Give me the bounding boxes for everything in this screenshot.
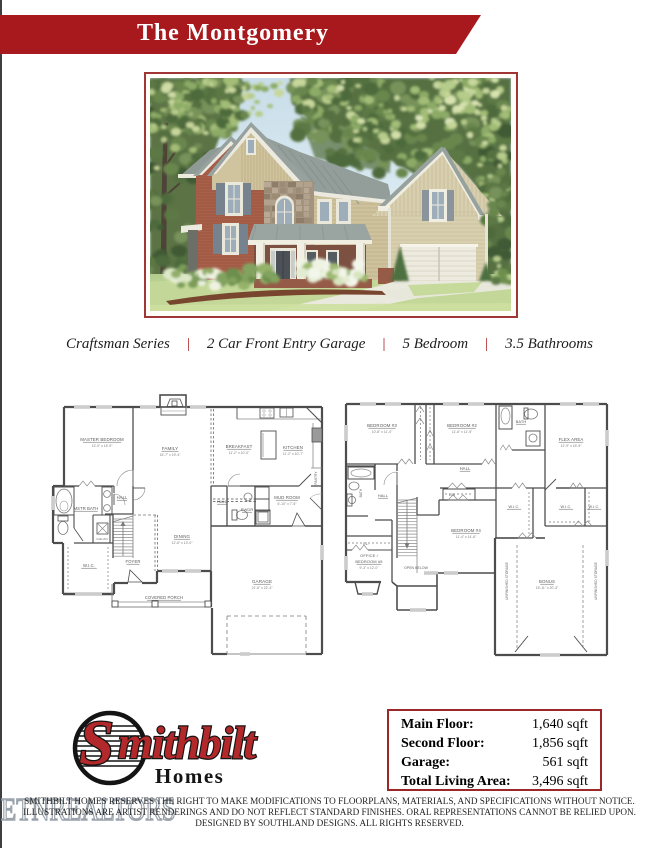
svg-text:OFFICE /: OFFICE / — [360, 553, 378, 558]
svg-text:15'-11" x 20'-3": 15'-11" x 20'-3" — [536, 586, 559, 590]
svg-text:W.I.C.: W.I.C. — [509, 505, 520, 509]
svg-text:10'-8" x 11'-0": 10'-8" x 11'-0" — [372, 430, 393, 434]
svg-text:FAMILY: FAMILY — [162, 446, 179, 451]
svg-text:BATH: BATH — [359, 488, 363, 497]
svg-text:9'-3" x 12'-0": 9'-3" x 12'-0" — [360, 566, 380, 570]
svg-text:Homes: Homes — [155, 764, 224, 788]
svg-text:MUD ROOM: MUD ROOM — [274, 495, 300, 500]
svg-text:21'-5" x 22'-3": 21'-5" x 22'-3" — [252, 586, 274, 590]
svg-text:BREAKFAST: BREAKFAST — [226, 444, 253, 449]
svg-text:COVERED PORCH: COVERED PORCH — [145, 595, 183, 600]
svg-text:BEDROOM #2: BEDROOM #2 — [447, 423, 477, 428]
svg-text:CL.: CL. — [363, 542, 369, 546]
svg-text:11'-2" x 10'-0": 11'-2" x 10'-0" — [229, 451, 250, 455]
svg-text:MSTR BATH: MSTR BATH — [74, 506, 99, 511]
svg-text:DINING: DINING — [174, 534, 190, 539]
svg-text:BEDROOM #4: BEDROOM #4 — [451, 528, 481, 533]
svg-text:11'-4" x 14'-6": 11'-4" x 14'-6" — [456, 535, 477, 539]
svg-text:6'-10" x 7'-5": 6'-10" x 7'-5" — [278, 502, 298, 506]
svg-text:11'-6" x 11'-5": 11'-6" x 11'-5" — [452, 430, 473, 434]
svg-text:HALL: HALL — [460, 466, 471, 471]
svg-text:KITCHEN: KITCHEN — [283, 445, 303, 450]
svg-text:HALL: HALL — [117, 495, 128, 500]
svg-text:BEDROOM #5: BEDROOM #5 — [355, 559, 383, 564]
svg-text:GARAGE: GARAGE — [252, 579, 272, 584]
svg-text:W.I.C.: W.I.C. — [561, 505, 572, 509]
svg-text:12'-6" x 13'-0": 12'-6" x 13'-0" — [172, 541, 194, 545]
svg-text:PANTRY: PANTRY — [314, 471, 318, 485]
svg-text:PWDR: PWDR — [241, 507, 254, 512]
svg-text:W.I.C.: W.I.C. — [83, 563, 95, 568]
svg-text:SHELVES: SHELVES — [96, 537, 108, 541]
svg-text:FOYER: FOYER — [126, 559, 141, 564]
svg-text:BEDROOM #3: BEDROOM #3 — [367, 423, 397, 428]
svg-text:S: S — [79, 708, 112, 778]
svg-text:BATH: BATH — [516, 419, 527, 424]
svg-text:W.I.C.: W.I.C. — [589, 505, 600, 509]
svg-text:11'-2" x 10'-7": 11'-2" x 10'-7" — [283, 452, 304, 456]
svg-text:12'-9" x 15'-9": 12'-9" x 15'-9" — [561, 444, 583, 448]
svg-text:HALL: HALL — [378, 493, 389, 498]
svg-text:BONUS: BONUS — [539, 579, 555, 584]
svg-text:OPEN BELOW: OPEN BELOW — [404, 566, 428, 570]
svg-text:mithbilt: mithbilt — [118, 718, 258, 768]
svg-text:FLEX AREA: FLEX AREA — [559, 437, 584, 442]
svg-text:HALL: HALL — [217, 499, 228, 504]
svg-text:UNFINISHED STORAGE: UNFINISHED STORAGE — [594, 562, 598, 600]
svg-text:UNFINISHED STORAGE: UNFINISHED STORAGE — [505, 562, 509, 600]
svg-text:15'-7" x 19'-4": 15'-7" x 19'-4" — [160, 453, 182, 457]
svg-text:MASTER BEDROOM: MASTER BEDROOM — [80, 437, 124, 442]
svg-text:13'-0" x 15'-9": 13'-0" x 15'-9" — [92, 444, 114, 448]
